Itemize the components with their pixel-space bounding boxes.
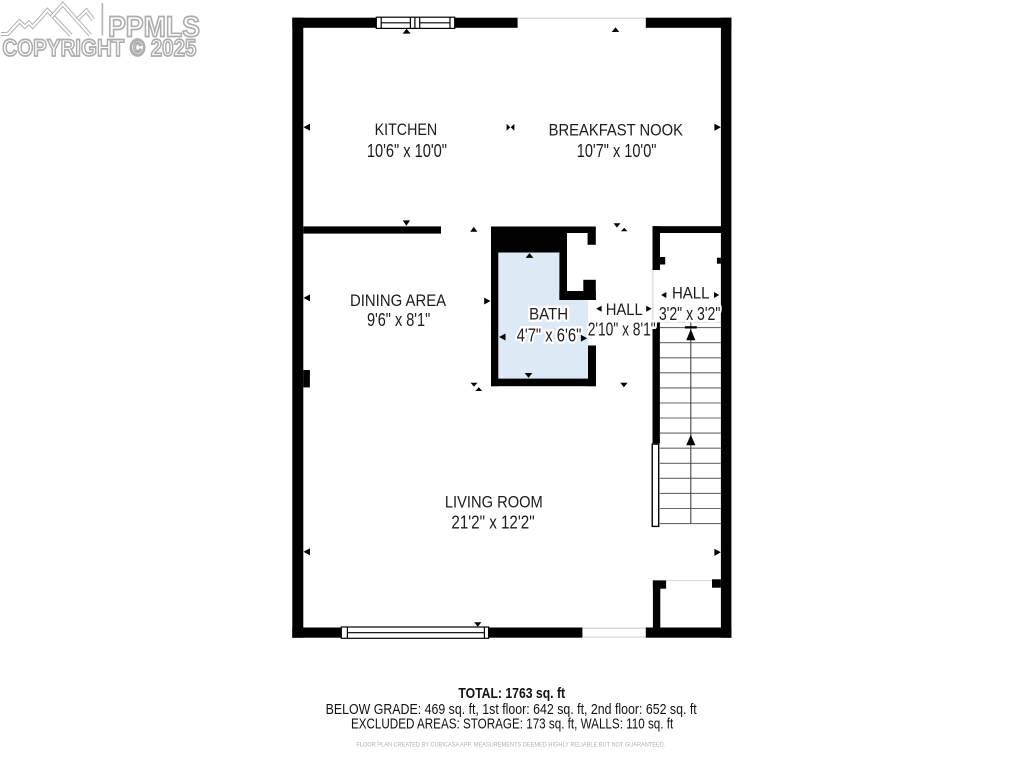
svg-text:COPYRIGHT © 2025: COPYRIGHT © 2025 [2,35,196,62]
svg-text:10'7" x 10'0": 10'7" x 10'0" [577,141,657,161]
svg-text:2'10" x 8'1": 2'10" x 8'1" [588,320,656,340]
svg-text:9'6" x 8'1": 9'6" x 8'1" [367,310,430,330]
svg-text:BATH: BATH [529,306,568,324]
svg-text:BREAKFAST NOOK: BREAKFAST NOOK [549,121,683,139]
svg-text:FLOOR PLAN CREATED BY CUBICASA: FLOOR PLAN CREATED BY CUBICASA APP. MEAS… [356,741,665,748]
svg-text:3'2" x 3'2": 3'2" x 3'2" [659,304,721,324]
svg-text:HALL: HALL [672,285,710,303]
svg-text:4'7" x 6'6": 4'7" x 6'6" [517,326,582,346]
svg-text:10'6" x 10'0": 10'6" x 10'0" [367,141,447,161]
svg-text:DINING AREA: DINING AREA [350,292,446,310]
svg-text:EXCLUDED AREAS: STORAGE: 173 s: EXCLUDED AREAS: STORAGE: 173 sq. ft, WAL… [351,716,673,732]
svg-text:KITCHEN: KITCHEN [375,121,438,139]
svg-text:TOTAL: 1763 sq. ft: TOTAL: 1763 sq. ft [458,686,565,702]
svg-text:21'2" x 12'2": 21'2" x 12'2" [451,513,534,533]
svg-text:HALL: HALL [606,301,643,319]
svg-text:LIVING ROOM: LIVING ROOM [445,494,543,512]
